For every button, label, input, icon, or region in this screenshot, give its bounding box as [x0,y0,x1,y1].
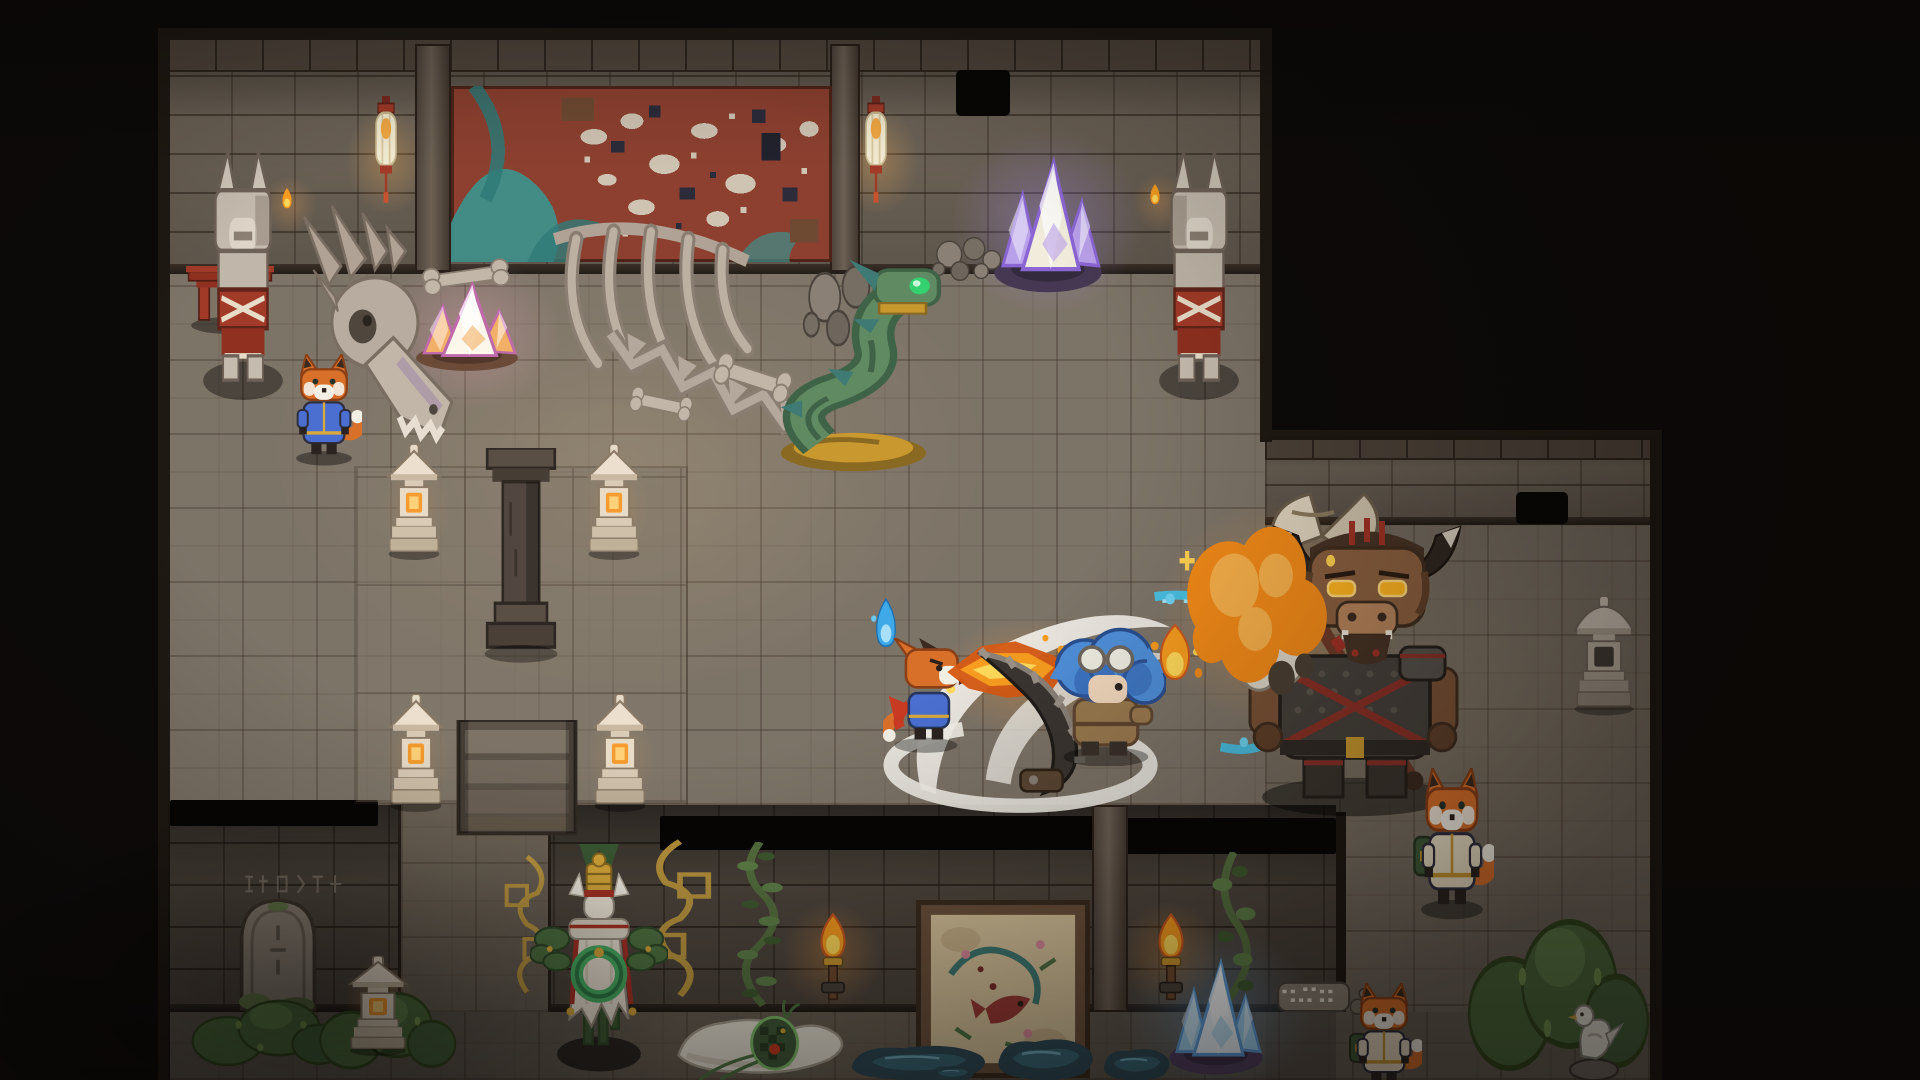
goddess-statue-figure [530,844,668,1080]
wall-opening-slot [170,800,378,826]
vine-plant [726,842,794,1010]
flame-ember [1146,182,1164,208]
fox-guardian-statue [1150,146,1248,400]
jade-serpent [768,256,956,474]
crystal-cluster [1162,954,1270,1076]
jade-serpent-statue [768,256,956,474]
goddess-statue [530,844,668,1080]
white-bird-statue [1564,991,1624,1080]
pale-creature [666,994,854,1080]
moss-clump [1466,888,1654,1080]
wall-vine [726,842,794,1010]
wall-pillar [1092,805,1128,1012]
pink-crystal-cluster [408,278,526,372]
fox-character [286,354,362,466]
altar-steps [452,720,582,840]
statue-flame [278,186,296,212]
stone-lantern-lit [386,694,446,812]
fox-statue-figure [194,146,292,400]
moss-patch-large [1466,888,1654,1080]
blue-crystal-cluster [1162,954,1270,1076]
game-viewport[interactable] [0,0,1920,1080]
stone-lantern-unlit [1570,596,1638,716]
stone-lantern-lit [590,694,650,812]
wall-opening-slot [1126,818,1336,854]
puddle-shape [928,1062,978,1080]
entity-layer [0,0,1920,1080]
fox-npc-blue-robe[interactable] [286,354,362,466]
broken-wall-hole [1516,492,1568,524]
stone-steps [452,720,582,840]
stone-lantern-lit [584,444,644,560]
stone-lantern-lit [386,694,446,812]
stone-lantern-lit [384,444,444,560]
paper-lantern [858,96,894,220]
stone-lantern-lit [345,956,411,1056]
explosion-cloud [1172,512,1342,707]
hanging-lantern [858,96,894,220]
broken-wall-hole [956,70,1010,116]
statue-flame [1146,182,1164,208]
explosion-puff [1172,512,1342,707]
wall-pillar [830,44,860,272]
stone-lantern-lit [590,694,650,812]
fox-character [1346,983,1422,1080]
pedestal [482,448,560,664]
crystal-cluster [408,278,526,372]
water-puddle [928,1062,978,1080]
water-puddle [990,1030,1102,1080]
fox-statue-figure [1150,146,1248,400]
puddle-shape [990,1030,1102,1080]
stone-pedestal [482,448,560,664]
pale-serpent-creature[interactable] [666,994,854,1080]
stone-lantern-lit [384,444,444,560]
flame-ember [278,186,296,212]
stone-lantern-unlit [1570,596,1638,716]
stone-lantern-lit [345,956,411,1056]
stone-lantern-lit [584,444,644,560]
fox-npc-bottom[interactable] [1346,983,1422,1080]
bird-statue-figure [1564,991,1624,1080]
fox-guardian-statue [194,146,292,400]
